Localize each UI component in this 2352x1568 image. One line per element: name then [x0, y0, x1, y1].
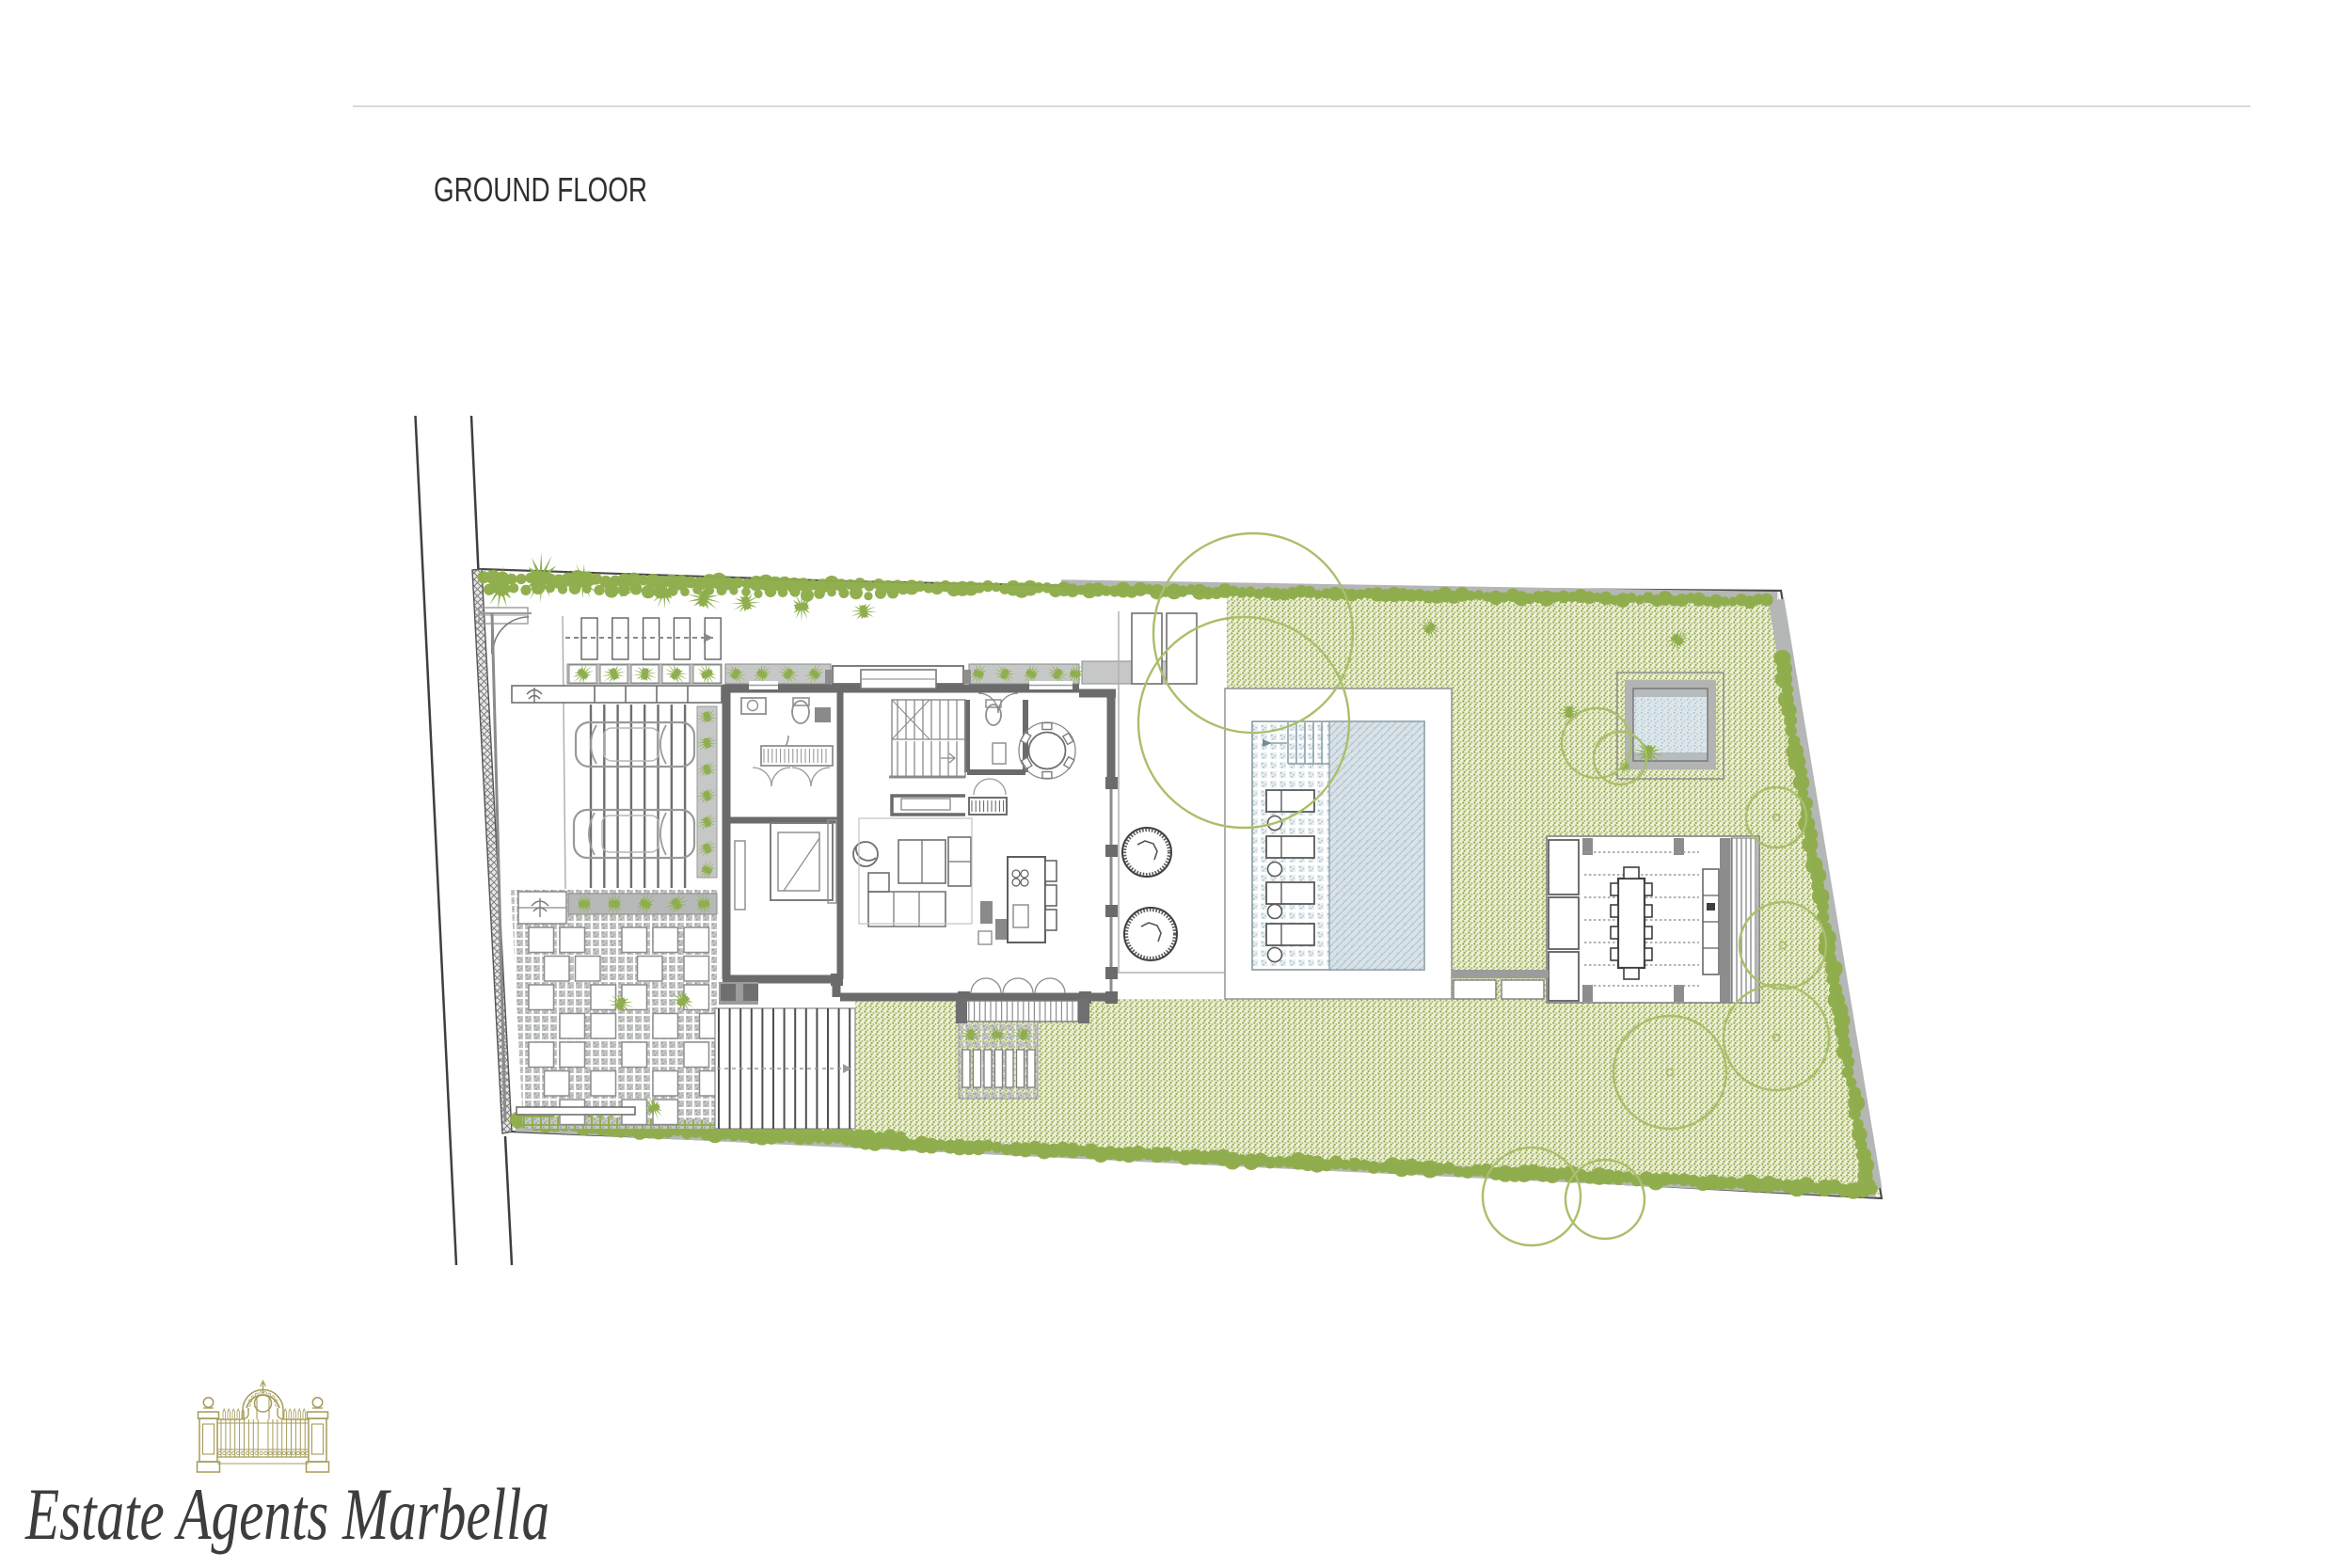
svg-text:Estate Agents Marbella: Estate Agents Marbella [24, 1473, 549, 1555]
svg-text:GROUND FLOOR: GROUND FLOOR [434, 170, 647, 209]
